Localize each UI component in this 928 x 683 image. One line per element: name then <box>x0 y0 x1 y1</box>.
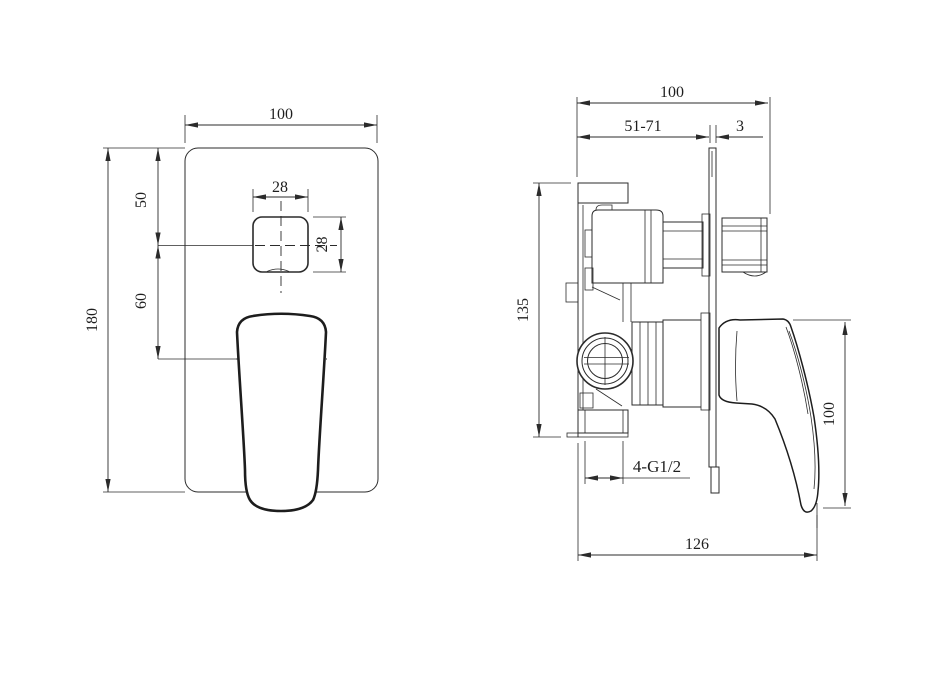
dim-label-knob-to-handle: 60 <box>133 293 150 309</box>
dim-side-plate-thickness: 3 <box>710 118 763 143</box>
wall-plate-edge <box>709 148 716 467</box>
side-valve-body <box>566 183 710 437</box>
dim-label-length: 126 <box>685 536 709 553</box>
dim-side-overall-depth: 100 <box>577 84 770 214</box>
dim-front-knob-to-handle: 60 <box>133 246 158 360</box>
diverter-block <box>592 210 663 283</box>
technical-drawing: 100 28 28 50 60 <box>0 0 928 683</box>
dim-label-plate-height: 180 <box>84 308 101 332</box>
front-knob-bottom-arc <box>267 269 289 272</box>
cartridge-body <box>663 320 703 407</box>
dim-label-plate-thickness: 3 <box>736 118 744 135</box>
side-handle-outline <box>719 319 819 512</box>
front-diverter-knob <box>253 217 308 272</box>
dim-label-knob-height: 28 <box>314 237 331 253</box>
bottom-port-block <box>578 410 628 433</box>
knob-face-lines <box>722 226 767 265</box>
diverter-stem-lines <box>663 231 703 259</box>
dim-label-overall-depth: 100 <box>660 84 684 101</box>
side-diverter-knob <box>722 218 767 276</box>
diverter-block-step <box>596 205 612 210</box>
neck-lines <box>623 283 631 322</box>
dim-label-handle-height: 100 <box>821 402 838 426</box>
body-detail-diagonal-bottom <box>596 389 622 406</box>
dim-side-body-height: 135 <box>515 183 571 437</box>
dim-label-thread: 4-G1/2 <box>633 457 681 476</box>
dim-label-rough-in: 51-71 <box>624 118 661 135</box>
wall-plate-bottom-jog <box>711 467 719 493</box>
front-lever-handle <box>237 314 326 511</box>
side-outlet-port <box>577 333 633 389</box>
bottom-flange <box>567 433 628 437</box>
dim-side-thread: 4-G1/2 <box>585 441 690 484</box>
body-lower-tab <box>580 393 593 408</box>
knob-bottom-arc <box>743 272 766 276</box>
drawing-sheet: 100 28 28 50 60 <box>0 0 928 683</box>
dim-label-knob-offset: 50 <box>133 192 150 208</box>
body-detail-diagonal-top <box>592 287 620 300</box>
body-left-lug <box>566 283 578 302</box>
diverter-stem <box>663 222 703 268</box>
dim-front-plate-width: 100 <box>185 106 377 143</box>
diverter-block-lines <box>645 210 651 283</box>
body-top-block <box>578 183 628 203</box>
bottom-port-walls <box>585 410 623 433</box>
front-view: 100 28 28 50 60 <box>84 106 378 511</box>
side-wall-plate <box>709 148 719 493</box>
dim-label-plate-width: 100 <box>269 106 293 123</box>
diverter-left-tab <box>585 230 592 257</box>
dim-front-knob-height: 28 <box>313 217 346 272</box>
side-lever-handle <box>719 319 819 528</box>
dim-label-body-height: 135 <box>515 298 532 322</box>
dim-front-knob-width: 28 <box>253 179 308 212</box>
dim-front-knob-offset: 50 <box>133 148 158 246</box>
side-view: 100 51-71 3 135 100 <box>515 84 851 561</box>
dim-label-knob-width: 28 <box>272 179 288 196</box>
dim-side-length: 126 <box>578 443 817 561</box>
dim-side-rough-in: 51-71 <box>577 118 709 137</box>
